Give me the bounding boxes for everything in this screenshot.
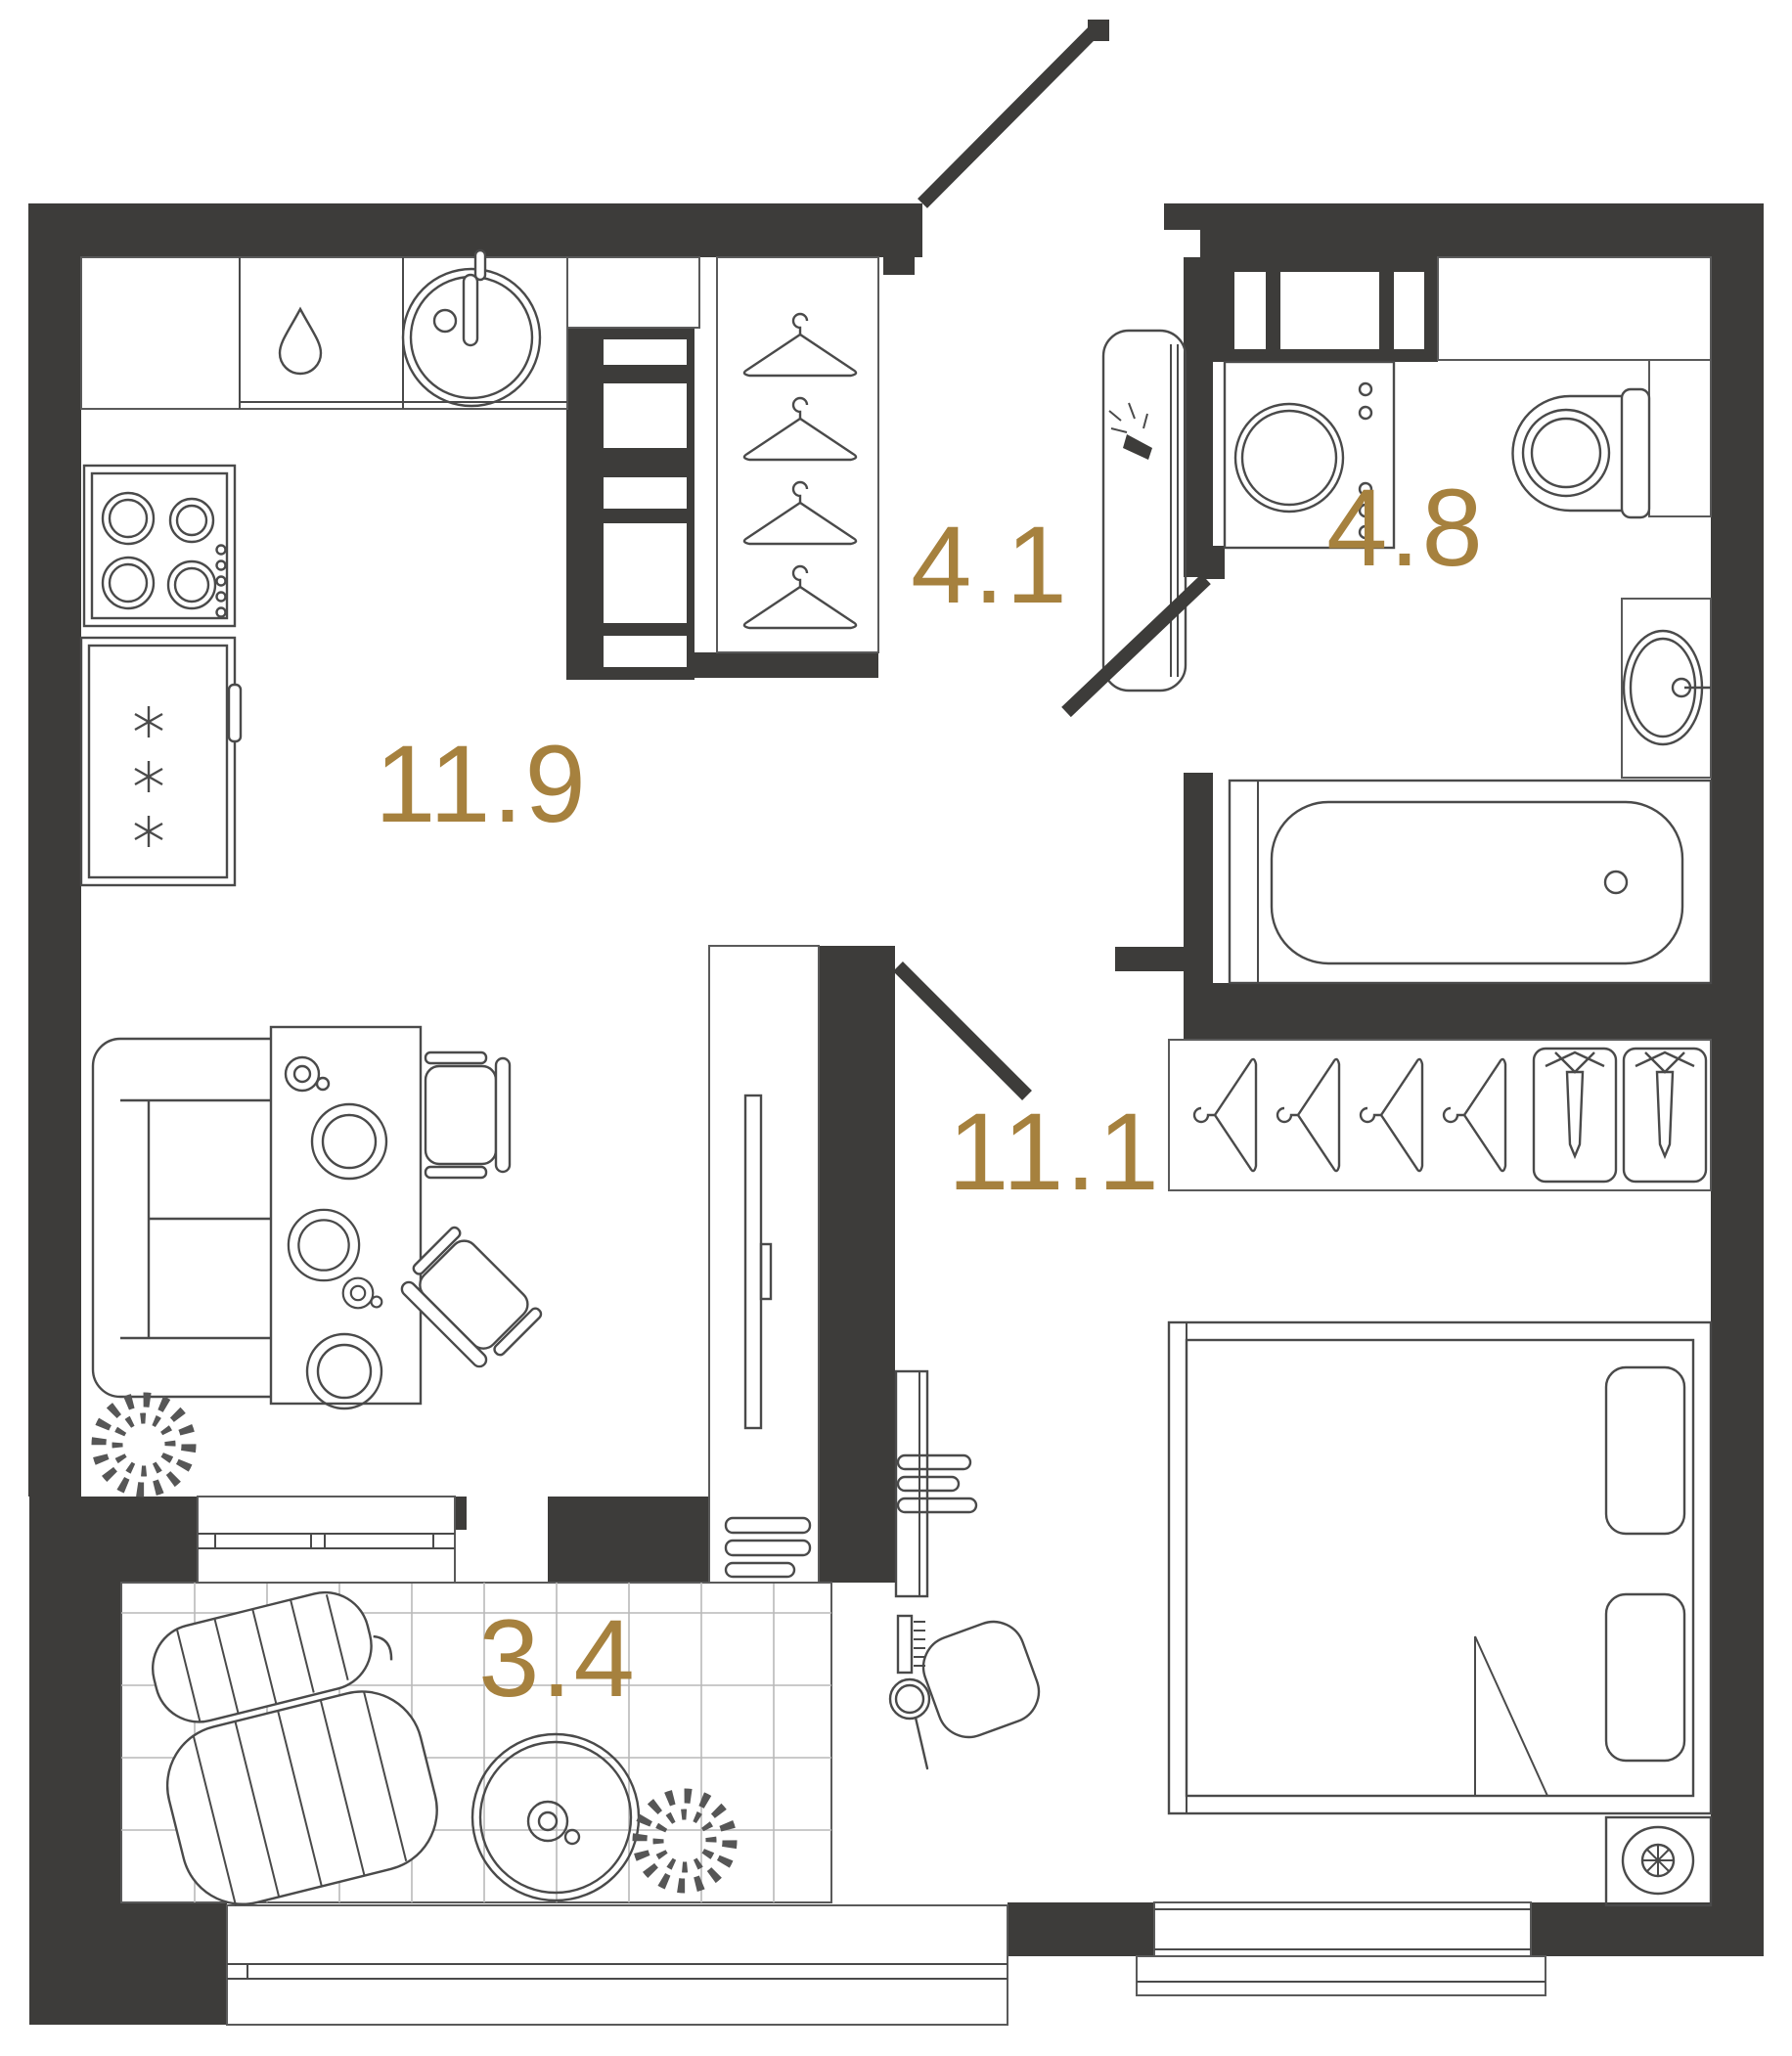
plant-icon	[99, 1400, 189, 1490]
room-label-bathroom: 4.8	[1326, 467, 1485, 589]
wall-top-left	[28, 203, 922, 257]
dressing-console	[890, 1371, 976, 1768]
wall-right	[1711, 203, 1764, 1956]
sconce-icon	[1109, 403, 1152, 460]
wall-top-left-jamb	[883, 257, 915, 275]
blanket-fold	[1475, 1636, 1547, 1796]
wall-left	[28, 203, 81, 1497]
shaft-opening	[604, 477, 687, 509]
wall-bath-door-stub	[1200, 546, 1225, 579]
balcony-window	[198, 1497, 455, 1583]
shaft-opening	[604, 383, 687, 448]
stove	[84, 466, 235, 626]
chair	[426, 1052, 510, 1178]
bath-duct	[1649, 360, 1711, 516]
entrance-door-end	[1088, 20, 1109, 41]
bedside-fan-unit	[1606, 1817, 1711, 1905]
floor-plan: 11.9 4.1 4.8 11.1 3.4	[0, 0, 1792, 2056]
wall-top-right-lower	[1200, 230, 1764, 257]
bath-window-pane	[1280, 272, 1379, 349]
bath-window-pane	[1234, 272, 1266, 349]
kitchen-living-furniture	[81, 250, 819, 1583]
room-label-kitchen-living: 11.9	[375, 723, 588, 845]
wall-balcony-window-jamb	[455, 1497, 467, 1530]
bathtub	[1230, 781, 1711, 983]
kitchen-upper-cabinet	[567, 257, 699, 328]
snowflake-icon	[135, 816, 162, 847]
bedroom-window-sill	[1137, 1956, 1546, 1995]
wall-living-hall	[819, 946, 895, 1583]
wall-hall-bath-stub	[1115, 947, 1186, 971]
shaft-opening	[604, 636, 687, 667]
dining-table	[271, 1027, 421, 1408]
entrance-door-leaf	[922, 27, 1098, 203]
toilet	[1513, 389, 1650, 517]
kitchen-counter	[81, 257, 567, 409]
wall-bath-bottom	[1184, 983, 1711, 1040]
hall-room-door-leaf	[898, 966, 1027, 1095]
wall-bedroom-bottom-left	[1008, 1902, 1154, 1956]
wall-bottom-left-block	[29, 1902, 227, 2025]
snowflake-icon	[135, 706, 162, 737]
bed	[1169, 1322, 1711, 1813]
pouf	[915, 1613, 1048, 1746]
wall-living-balcony-left	[81, 1497, 198, 1583]
shaft-opening	[604, 523, 687, 623]
bath-window-pane	[1394, 272, 1424, 349]
pillow	[1606, 1367, 1684, 1534]
faucet-icon	[464, 275, 477, 345]
wall-bedroom-bottom-right	[1531, 1902, 1764, 1956]
comb-icon	[898, 1616, 925, 1673]
hand-mirror-icon	[890, 1679, 929, 1768]
wall-closet-bottom	[687, 652, 878, 678]
tv-stand	[709, 946, 819, 1583]
room-label-bedroom: 11.1	[948, 1091, 1161, 1213]
snowflake-icon	[135, 761, 162, 792]
wall-bath-left-upper	[1184, 257, 1213, 577]
shaft-opening	[604, 339, 687, 365]
pillow	[1606, 1594, 1684, 1761]
bath-shelf	[1438, 257, 1711, 360]
wall-top-right-upper	[1164, 203, 1764, 230]
room-label-balcony: 3.4	[478, 1597, 637, 1720]
stove-knobs	[217, 546, 226, 617]
room-label-hall: 4.1	[911, 504, 1069, 626]
bedroom-window	[1154, 1902, 1531, 1956]
fridge	[81, 638, 241, 885]
